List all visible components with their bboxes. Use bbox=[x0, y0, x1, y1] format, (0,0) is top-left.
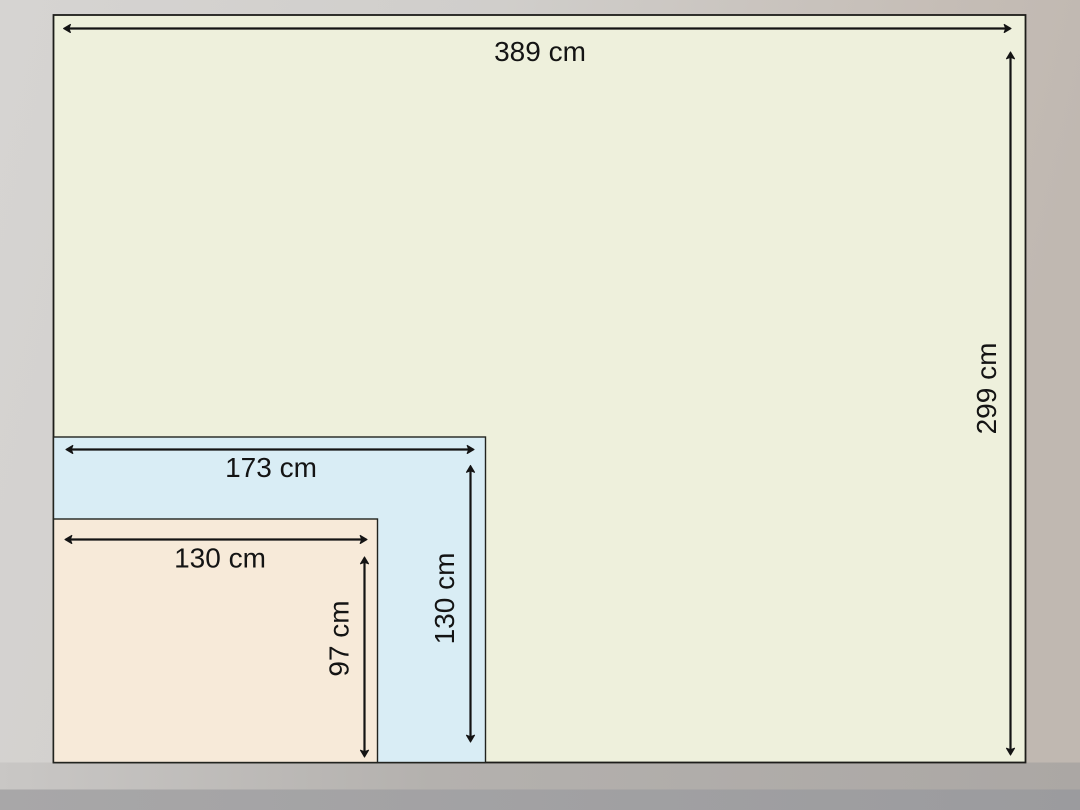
svg-text:173 cm: 173 cm bbox=[225, 452, 317, 483]
svg-text:389 cm: 389 cm bbox=[494, 36, 586, 67]
svg-text:299 cm: 299 cm bbox=[971, 343, 1002, 435]
svg-text:130 cm: 130 cm bbox=[429, 553, 460, 645]
svg-text:97 cm: 97 cm bbox=[324, 600, 355, 676]
svg-text:130 cm: 130 cm bbox=[174, 543, 266, 574]
